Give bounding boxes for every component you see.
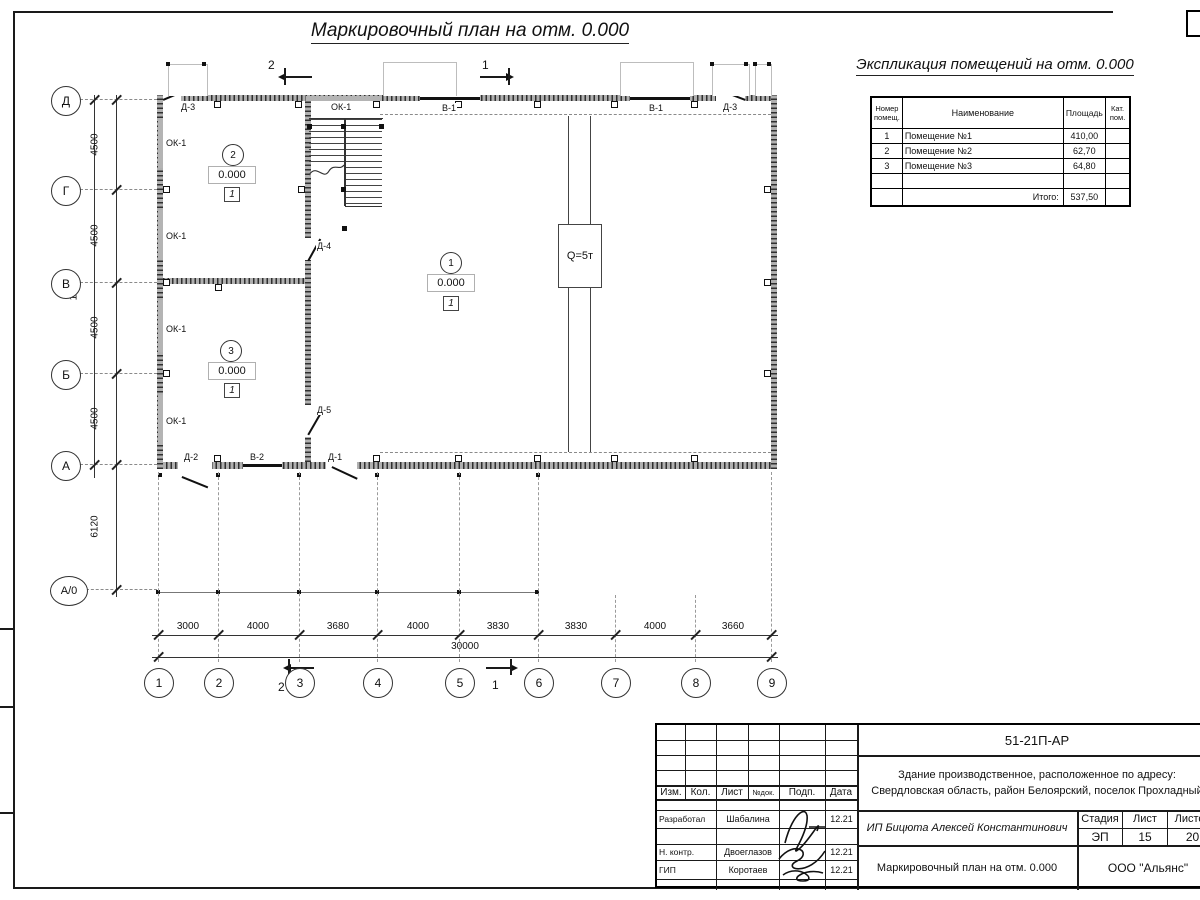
col-podp: Подп.	[779, 785, 825, 799]
room-elevation: 0.000	[208, 362, 256, 380]
axis-bubble: 8	[681, 668, 711, 698]
page-title: Маркировочный план на отм. 0.000	[300, 20, 640, 42]
project-description: Здание производственное, расположенное п…	[862, 757, 1200, 809]
door-opening-d1	[326, 462, 357, 469]
pilaster	[455, 455, 462, 462]
role-name: Двоеглазов	[718, 844, 778, 860]
section-mark-label: 2	[278, 680, 285, 694]
table-row: 3 Помещение №3 64,80	[871, 159, 1130, 174]
pilaster	[163, 186, 170, 193]
cell-num	[871, 189, 902, 207]
axis-bubble: Г	[51, 176, 81, 206]
crane-rail-dashed	[380, 452, 771, 453]
section-mark-tick	[508, 68, 510, 85]
section-mark-tick	[510, 659, 512, 675]
room-number-circle: 3	[220, 340, 242, 362]
dimension-total-text: 30000	[440, 641, 490, 652]
stair-post	[379, 124, 384, 129]
stair-break-line	[309, 161, 344, 183]
stair-post	[307, 124, 312, 129]
stair-flight-lower	[345, 119, 382, 207]
titleblock-line	[657, 799, 857, 801]
col-header: Кат. пом.	[1105, 97, 1130, 129]
pilaster	[691, 101, 698, 108]
pilaster	[215, 284, 222, 291]
titleblock-line	[657, 755, 857, 756]
axis-extension-line	[615, 595, 616, 662]
door-label-d3: Д-3	[180, 102, 196, 112]
section-mark-label: 1	[492, 678, 499, 692]
axis-number: 2	[216, 676, 223, 690]
axis-number: 1	[156, 676, 163, 690]
cell-cat	[1105, 174, 1130, 189]
cell-area: 62,70	[1063, 144, 1105, 159]
platform-post-dot	[202, 62, 206, 66]
section-mark-label: 2	[268, 58, 275, 72]
cell-name: Помещение №1	[902, 129, 1063, 144]
col-header: Площадь	[1063, 97, 1105, 129]
explication-title: Экспликация помещений на отм. 0.000	[845, 56, 1145, 73]
sheet-title: Маркировочный план на отм. 0.000	[859, 847, 1075, 888]
cell-num: 2	[871, 144, 902, 159]
pilaster	[373, 101, 380, 108]
axis-bubble: 2	[204, 668, 234, 698]
pilaster	[611, 101, 618, 108]
sheet-value: 15	[1123, 829, 1167, 844]
room-number-circle: 1	[440, 252, 462, 274]
axis-letter: Д	[62, 94, 70, 108]
room-elevation: 0.000	[208, 166, 256, 184]
cell-area: 64,80	[1063, 159, 1105, 174]
room-category: 1	[443, 296, 459, 311]
cell-name: Помещение №3	[902, 159, 1063, 174]
dimension-line	[152, 657, 778, 658]
door-label-d3: Д-3	[722, 102, 738, 112]
cell-cat	[1105, 189, 1130, 207]
window-label-ok1: ОК-1	[165, 231, 187, 241]
wall-interior-vertical	[305, 437, 311, 462]
pilaster	[214, 455, 221, 462]
titleblock-line	[657, 770, 857, 771]
axis-bubble: 3	[285, 668, 315, 698]
cell-total-area: 537,50	[1063, 189, 1105, 207]
gate-leaf-v2	[243, 464, 282, 467]
axis-number: 6	[536, 676, 543, 690]
stair-stringer-line	[344, 119, 346, 206]
doc-number: 51-21П-АР	[857, 727, 1200, 753]
room-category: 1	[224, 187, 240, 202]
col-kol: Кол.	[685, 785, 716, 799]
role-name: Шабалина	[718, 810, 778, 828]
role-name: Коротаев	[718, 860, 778, 879]
axis-extension-line	[86, 589, 157, 590]
axis-bubble: 4	[363, 668, 393, 698]
col-data: Дата	[825, 785, 857, 799]
room-elevation: 0.000	[427, 274, 475, 292]
stage-header: Стадия	[1078, 811, 1122, 827]
window-ok1	[158, 300, 163, 352]
axis-bubble: Д	[51, 86, 81, 116]
stair-flight-upper	[309, 119, 344, 165]
window-label-ok1: ОК-1	[165, 324, 187, 334]
explication-title-text: Экспликация помещений на отм. 0.000	[856, 56, 1133, 76]
section-mark-line	[480, 76, 508, 78]
door-label-d1: Д-1	[327, 452, 343, 462]
cell-cat	[1105, 159, 1130, 174]
platform-post-dot	[753, 62, 757, 66]
drawing-sheet: { "sheet": { "plan_title": "Маркировочны…	[0, 0, 1200, 900]
section-mark-tick	[284, 68, 286, 85]
dimension-text: 4000	[400, 621, 436, 632]
dimension-text: 4000	[240, 621, 276, 632]
pilaster	[373, 455, 380, 462]
axis-bubble: 1	[144, 668, 174, 698]
pilaster	[764, 370, 771, 377]
axis-extension-line	[80, 189, 157, 190]
stair-post	[341, 187, 346, 192]
gate-leaf-v1	[420, 97, 480, 100]
cell-area: 410,00	[1063, 129, 1105, 144]
entrance-platform	[168, 64, 208, 96]
cell-num	[871, 174, 902, 189]
dimension-text: 4500	[90, 133, 101, 155]
door-label-d2: Д-2	[183, 452, 199, 462]
door-label-d4: Д-4	[316, 241, 332, 251]
axis-letter: В	[62, 277, 70, 291]
dimension-line	[116, 95, 117, 597]
entrance-platform	[712, 64, 750, 96]
window-label-ok1: ОК-1	[330, 102, 352, 112]
section-mark-line	[486, 667, 512, 669]
ramp-platform	[620, 62, 694, 96]
ramp-platform	[383, 62, 457, 96]
axis-letter: Г	[63, 184, 70, 198]
column-mark	[342, 226, 347, 231]
room-number-circle: 2	[222, 144, 244, 166]
axis-bubble: 5	[445, 668, 475, 698]
window-ok1	[158, 395, 163, 445]
role-label: ГИП	[659, 860, 716, 879]
axis-number: 5	[457, 676, 464, 690]
axis-bubble: Б	[51, 360, 81, 390]
sheets-value: 20	[1168, 829, 1200, 844]
dimension-text: 4500	[90, 316, 101, 338]
axis-extension-line	[80, 373, 157, 374]
axis-bubble: А	[51, 451, 81, 481]
crane-capacity-label: Q=5т	[567, 250, 593, 262]
axis-bubble: А/0	[50, 576, 88, 606]
table-total-row: Итого: 537,50	[871, 189, 1130, 207]
role-date: 12.21	[826, 844, 857, 860]
axis-bubble: 7	[601, 668, 631, 698]
pilaster	[163, 279, 170, 286]
dimension-text: 3000	[170, 621, 206, 632]
col-list: Лист	[716, 785, 748, 799]
axis-letter: А	[62, 459, 70, 473]
table-row: 2 Помещение №2 62,70	[871, 144, 1130, 159]
axis-number: 7	[613, 676, 620, 690]
frame-left-line	[13, 11, 15, 888]
axis-bubble: 6	[524, 668, 554, 698]
cell-name	[902, 174, 1063, 189]
room-number: 2	[230, 150, 236, 161]
role-date: 12.21	[826, 810, 857, 828]
platform-post-dot	[767, 62, 771, 66]
plan-title-text: Маркировочный план на отм. 0.000	[311, 20, 629, 44]
cell-num: 3	[871, 159, 902, 174]
dimension-text: 4500	[90, 224, 101, 246]
dimension-text: 3830	[480, 621, 516, 632]
axis-number: 3	[297, 676, 304, 690]
role-label: Н. контр.	[659, 844, 716, 860]
pilaster	[298, 186, 305, 193]
frame-tick	[0, 706, 13, 708]
door-swing-d2	[182, 476, 209, 488]
corner-stamp-box	[1186, 10, 1200, 37]
dimension-text: 3660	[715, 621, 751, 632]
gate-label-v2: В-2	[249, 452, 265, 462]
section-mark-line	[284, 76, 312, 78]
axis-letter: А/0	[61, 585, 78, 597]
room-number: 3	[228, 346, 234, 357]
dimension-text: 3680	[320, 621, 356, 632]
frame-top-line	[13, 11, 1113, 13]
door-label-d5: Д-5	[316, 405, 332, 415]
room-number: 1	[448, 258, 454, 269]
explication-table: Номер помещ. Наименование Площадь Кат. п…	[870, 96, 1131, 207]
gate-label-v1: В-1	[441, 103, 457, 113]
gate-leaf-v1	[630, 97, 690, 100]
axis-number: 9	[769, 676, 776, 690]
window-label-ok1: ОК-1	[165, 138, 187, 148]
cell-name: Помещение №2	[902, 144, 1063, 159]
table-row: 1 Помещение №1 410,00	[871, 129, 1130, 144]
gate-label-v1: В-1	[648, 103, 664, 113]
dimension-text: 4500	[90, 407, 101, 429]
pilaster	[163, 370, 170, 377]
dimension-text: 3830	[558, 621, 594, 632]
stair-post	[341, 124, 346, 129]
crane-rail-dashed	[380, 114, 771, 115]
pilaster	[534, 455, 541, 462]
role-label: Разработал	[659, 810, 716, 828]
col-header: Номер помещ.	[871, 97, 902, 129]
cell-num: 1	[871, 129, 902, 144]
window-ok1	[158, 210, 163, 260]
window-ok1	[158, 118, 163, 168]
frame-tick	[0, 812, 13, 814]
axis-bubble: В	[51, 269, 81, 299]
cell-cat	[1105, 129, 1130, 144]
cell-total-label: Итого:	[902, 189, 1063, 207]
title-block: Изм. Кол. Лист №док. Подп. Дата Разработ…	[655, 723, 1200, 888]
sheet-header: Лист	[1123, 811, 1167, 827]
platform-post-dot	[744, 62, 748, 66]
signature-icon	[775, 837, 830, 885]
client-name: ИП Бицюта Алексей Константинович	[862, 812, 1072, 844]
pilaster	[295, 101, 302, 108]
axis-number: 8	[693, 676, 700, 690]
col-izm: Изм.	[657, 785, 685, 799]
titleblock-line	[716, 725, 717, 890]
dimension-text: 6120	[90, 515, 101, 537]
col-ndok: №док.	[748, 785, 779, 799]
col-header: Наименование	[902, 97, 1063, 129]
window-label-ok1: ОК-1	[165, 416, 187, 426]
staircase	[309, 118, 383, 206]
titleblock-line	[657, 740, 857, 741]
sheets-header: Листов	[1168, 811, 1200, 827]
dimension-line	[152, 635, 778, 636]
dimension-text: 4000	[637, 621, 673, 632]
titleblock-line	[657, 828, 857, 829]
platform-post-dot	[166, 62, 170, 66]
axis-extension-line	[80, 282, 157, 283]
company-name: ООО "Альянс"	[1079, 847, 1200, 888]
cell-area	[1063, 174, 1105, 189]
role-date: 12.21	[826, 860, 857, 879]
pilaster	[764, 279, 771, 286]
pilaster	[691, 455, 698, 462]
wall-interior-horizontal	[163, 278, 305, 284]
wall-right	[771, 95, 777, 469]
axis-letter: Б	[62, 368, 70, 382]
cell-cat	[1105, 144, 1130, 159]
window-ok1-top	[306, 96, 382, 101]
stage-value: ЭП	[1078, 829, 1122, 844]
door-opening-d2	[178, 462, 212, 469]
platform-post-dot	[710, 62, 714, 66]
pilaster	[214, 101, 221, 108]
pilaster	[611, 455, 618, 462]
pilaster	[534, 101, 541, 108]
foundation-axis-line	[158, 592, 538, 593]
room-category: 1	[224, 383, 240, 398]
axis-extension-line	[695, 595, 696, 662]
wall-interior-vertical	[305, 260, 311, 405]
frame-tick	[0, 628, 13, 630]
section-mark-label: 1	[482, 58, 489, 72]
pilaster	[764, 186, 771, 193]
table-row	[871, 174, 1130, 189]
crane-capacity-box: Q=5т	[558, 224, 602, 288]
entrance-platform	[755, 64, 772, 96]
axis-number: 4	[375, 676, 382, 690]
table-header-row: Номер помещ. Наименование Площадь Кат. п…	[871, 97, 1130, 129]
axis-bubble: 9	[757, 668, 787, 698]
